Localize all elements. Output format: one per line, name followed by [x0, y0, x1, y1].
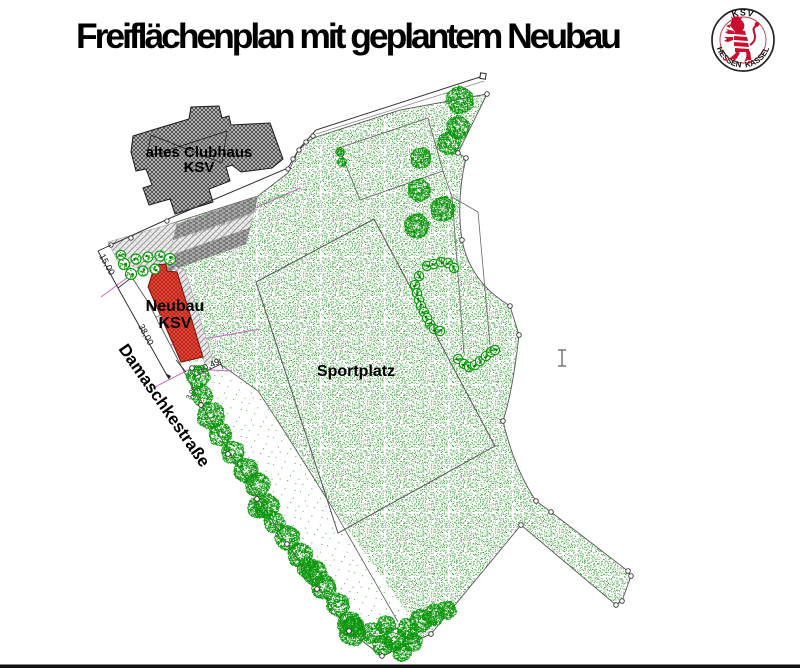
svg-text:Neubau: Neubau [146, 298, 205, 315]
svg-text:KSV: KSV [159, 315, 192, 332]
svg-text:Freiflächenplan mit geplantem: Freiflächenplan mit geplantem Neubau [76, 16, 622, 56]
svg-text:KSV: KSV [184, 159, 215, 176]
svg-text:Sportplatz: Sportplatz [317, 363, 395, 380]
